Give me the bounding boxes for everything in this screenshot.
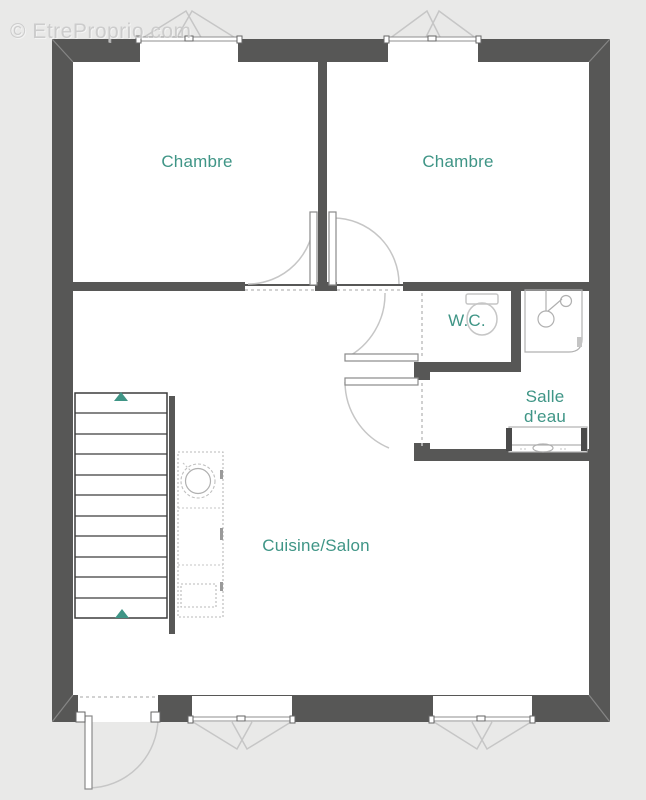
staircase [75,392,167,618]
room-label-kitchen-living: Cuisine/Salon [236,536,396,556]
entrance-door [76,695,160,789]
window-living-right [429,696,535,749]
room-label-shower-room: Salle d'eau [509,387,581,427]
door-leaf [345,378,418,385]
door-leaf [85,716,92,789]
floor-plan-canvas: Chambre Chambre W.C. Salle d'eau Cuisine… [0,0,646,800]
vanity-sink-icon [506,427,587,452]
hob-icon [181,584,216,607]
room-label-wc: W.C. [432,311,502,331]
door-leaf [329,212,336,285]
door-swing-arc [88,718,158,788]
door-jamb [151,712,160,722]
door-leaf [310,212,317,285]
room-label-bedroom-1: Chambre [127,152,267,172]
window-bedroom2 [384,11,481,62]
watermark: © EtreProprio.com [10,20,192,44]
room-label-bedroom-2: Chambre [388,152,528,172]
door-jamb [76,712,85,722]
window-living-left [188,696,295,749]
door-leaf [345,354,418,361]
kitchen-counter [178,452,223,617]
